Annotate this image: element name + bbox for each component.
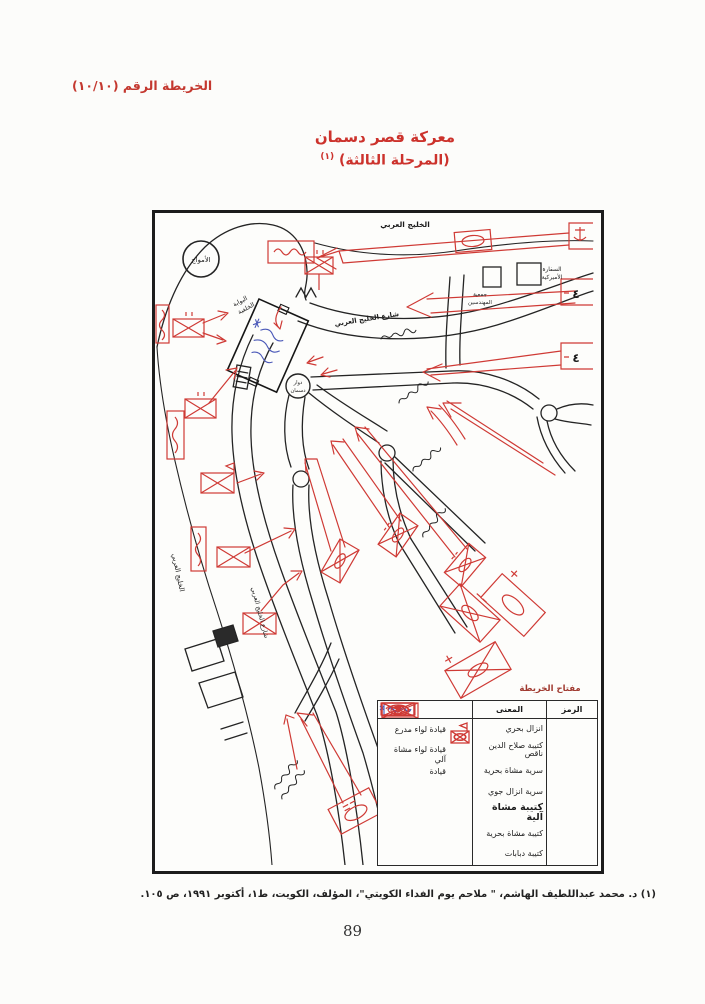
legend-meaning: سرية انزال جوي [473, 788, 546, 796]
title-footnote-mark: (١) [320, 152, 334, 162]
naval-anchor-symbol [569, 223, 593, 249]
amwaj-label: الأمواج [191, 255, 210, 264]
legend-col-meaning: المعنى [473, 701, 546, 718]
command-label: قيادة [381, 767, 446, 777]
brigade-4-b-label: ٤ [572, 351, 579, 365]
legend-row: كتيبة مشاة آلية [473, 802, 597, 823]
engineers-label-1: جمعية [473, 292, 487, 298]
legend-meaning: كتيبة صلاح الدين ناقص [473, 742, 546, 759]
brigade-4-a-label: ٤ [572, 287, 579, 301]
legend-meaning: كتيبة مشاة آلية [473, 803, 546, 823]
title-line1: معركة قصر دسمان [250, 128, 520, 146]
command-labels: قيادة لواء مدرع قيادة لواء مشاة آلي قياد… [381, 725, 446, 777]
legend-meaning: سرية مشاة بحرية [473, 767, 546, 775]
legend-row: كتيبة مشاة بحرية [473, 823, 597, 844]
reserve-units-cluster [439, 565, 553, 699]
legend-command-section: قيادة لواء مدرع قيادة لواء مشاة آلي قياد… [378, 701, 472, 865]
dasman-roundabout-label-1: دوار [293, 380, 303, 386]
legend-title: مفتاح الخريطة [507, 684, 593, 694]
title-line2: (المرحلة الثالثة) (١) [250, 152, 520, 169]
gulf-left-label: الخليج العربي [170, 553, 186, 593]
title-line2-text: (المرحلة الثالثة) [339, 153, 450, 169]
legend-symbol-table: الرمز المعنى انزال بحري كتيبة صلاح الدين… [472, 701, 597, 865]
legend-row: سرية مشاة بحرية [473, 761, 597, 782]
dasman-roundabout-label-2: دسمان [290, 388, 306, 394]
us-embassy-label-1: السفارة [542, 267, 561, 273]
command-label: قيادة لواء مشاة آلي [381, 745, 446, 765]
command-label: قيادة لواء مدرع [381, 725, 446, 735]
command-hq-icon [448, 721, 472, 747]
legend-row: كتيبة دبابات [473, 844, 597, 865]
map-number-label: الخريطة الرقم (١٠/١٠) [72, 78, 212, 93]
map-legend: الرمز المعنى انزال بحري كتيبة صلاح الدين… [377, 700, 598, 866]
engineers-label-2: المهندسين [468, 300, 492, 306]
legend-row: سرية انزال جوي [473, 782, 597, 803]
legend-meaning: كتيبة دبابات [473, 850, 546, 858]
legend-meaning: انزال بحري [473, 725, 546, 733]
legend-row: كتيبة صلاح الدين ناقص [473, 740, 597, 761]
battle-map: الخليج العربي شارع الخليج العربي الأمواج… [152, 210, 604, 874]
gulf-top-label: الخليج العربي [380, 220, 430, 229]
legend-meaning: كتيبة مشاة بحرية [473, 830, 546, 838]
footnote: (١) د. محمد عبداللطيف الهاشم، " ملاحم يو… [140, 889, 656, 900]
page-title: معركة قصر دسمان (المرحلة الثالثة) (١) [250, 128, 520, 169]
naval-landing-symbol [156, 241, 314, 571]
legend-row: انزال بحري [473, 719, 597, 740]
us-embassy-label-2: الأميركية [542, 273, 563, 281]
page-number: 89 [0, 922, 705, 940]
legend-col-symbol: الرمز [546, 701, 597, 718]
